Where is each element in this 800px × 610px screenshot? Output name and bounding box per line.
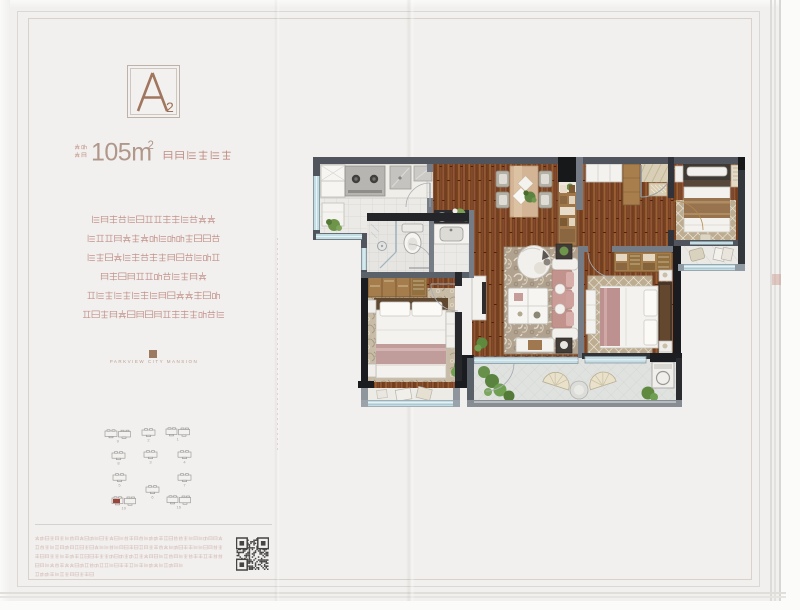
svg-text:16: 16	[177, 505, 182, 510]
svg-text:5: 5	[118, 483, 121, 488]
svg-text:7: 7	[183, 483, 186, 488]
svg-text:4: 4	[183, 460, 186, 465]
svg-text:10: 10	[122, 506, 127, 511]
svg-text:1: 1	[177, 437, 180, 442]
svg-text:3: 3	[149, 460, 152, 465]
svg-text:9: 9	[117, 439, 120, 444]
svg-text:6: 6	[151, 495, 154, 500]
svg-text:2: 2	[147, 438, 150, 443]
svg-text:2: 2	[166, 99, 174, 115]
svg-text:2: 2	[148, 140, 154, 152]
svg-text:105m: 105m	[91, 139, 152, 167]
svg-text:8: 8	[117, 461, 120, 466]
